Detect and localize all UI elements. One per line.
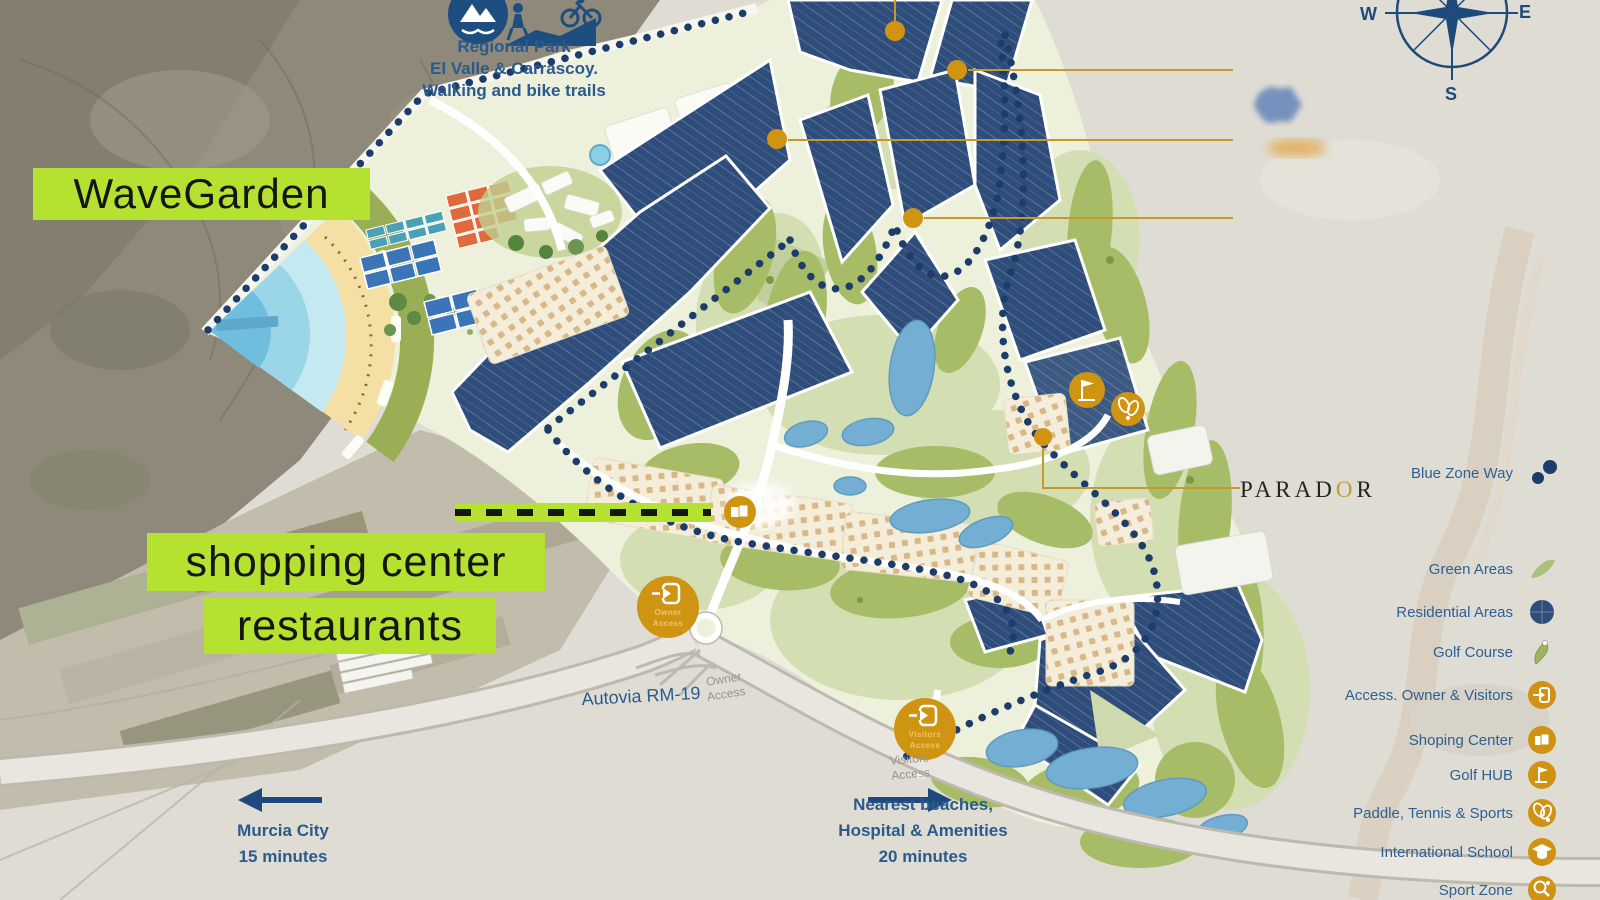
golf-course-icon [1526, 636, 1558, 668]
legend-item-blue-zone-way: Blue Zone Way [1411, 456, 1558, 490]
legend-item-sport-zone: Sport Zone [1439, 873, 1558, 900]
golf-flag-icon [1526, 759, 1558, 791]
masterplan-map: Regional Park El Valle & Carrascoy. Walk… [0, 0, 1600, 900]
compass-south: S [1445, 84, 1457, 105]
owner-access-badge-label: Owner Access [628, 607, 708, 629]
residential-circle-icon [1526, 596, 1558, 628]
shopping-bag-icon [1526, 724, 1558, 756]
enter-icon [1526, 679, 1558, 711]
legend-item-shopping-center: Shoping Center [1409, 723, 1558, 757]
golf-hub-badge [1069, 372, 1105, 408]
regional-park-line2: El Valle & Carrascoy. [398, 58, 630, 80]
legend-item-golf-hub: Golf HUB [1450, 758, 1558, 792]
parador-text-end: R [1356, 477, 1375, 502]
legend-item-school: International School [1380, 835, 1558, 869]
compass-west: W [1360, 4, 1377, 25]
graduation-cap-icon [1526, 836, 1558, 868]
beaches-direction: Nearest beaches, Hospital & Amenities 20… [818, 792, 1028, 870]
parador-gold-o: O [1336, 477, 1357, 502]
murcia-direction: Murcia City 15 minutes [188, 818, 378, 870]
regional-park-note: Regional Park El Valle & Carrascoy. Walk… [398, 36, 630, 102]
parador-label: PARADOR [1240, 477, 1376, 503]
map-artwork [0, 0, 1600, 900]
legend-item-residential-areas: Residential Areas [1396, 595, 1558, 629]
legend-item-green-areas: Green Areas [1429, 552, 1558, 586]
blue-dots-icon [1526, 457, 1558, 489]
legend-item-paddle: Paddle, Tennis & Sports [1353, 796, 1558, 830]
visitors-access-badge-label: Visitors Access [885, 729, 965, 751]
regional-park-line3: Walking and bike trails [398, 80, 630, 102]
legend-item-golf-course: Golf Course [1433, 635, 1558, 669]
legend-item-access: Access. Owner & Visitors [1345, 678, 1558, 712]
compass-east: E [1519, 2, 1531, 23]
shopping-leader-line [455, 503, 711, 522]
parador-text: PARAD [1240, 477, 1336, 502]
restaurants-label: restaurants [204, 598, 496, 654]
regional-park-line1: Regional Park [398, 36, 630, 58]
green-area-icon [1526, 553, 1558, 585]
shopping-center-label: shopping center [147, 533, 545, 591]
rackets-icon [1526, 797, 1558, 829]
wavegarden-label: WaveGarden [33, 168, 370, 220]
sport-racket-icon [1526, 874, 1558, 900]
